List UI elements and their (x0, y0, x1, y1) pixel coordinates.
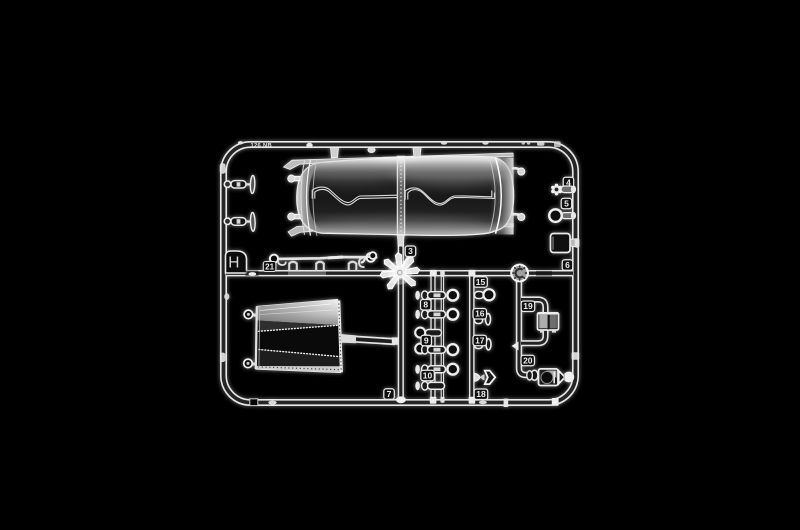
svg-text:16: 16 (475, 309, 485, 319)
svg-text:H: H (228, 255, 239, 272)
svg-text:6: 6 (565, 260, 570, 270)
svg-text:15: 15 (476, 277, 486, 287)
svg-text:7: 7 (387, 389, 392, 399)
svg-text:5: 5 (564, 198, 569, 208)
svg-text:3: 3 (408, 246, 413, 256)
svg-text:20: 20 (523, 355, 533, 365)
svg-text:8: 8 (423, 300, 428, 310)
svg-text:17: 17 (475, 335, 485, 345)
svg-text:126 NB: 126 NB (251, 143, 272, 149)
svg-text:19: 19 (523, 301, 533, 311)
svg-text:10: 10 (423, 370, 433, 380)
svg-text:18: 18 (476, 389, 486, 399)
svg-text:21: 21 (265, 262, 274, 271)
svg-text:9: 9 (424, 335, 429, 345)
